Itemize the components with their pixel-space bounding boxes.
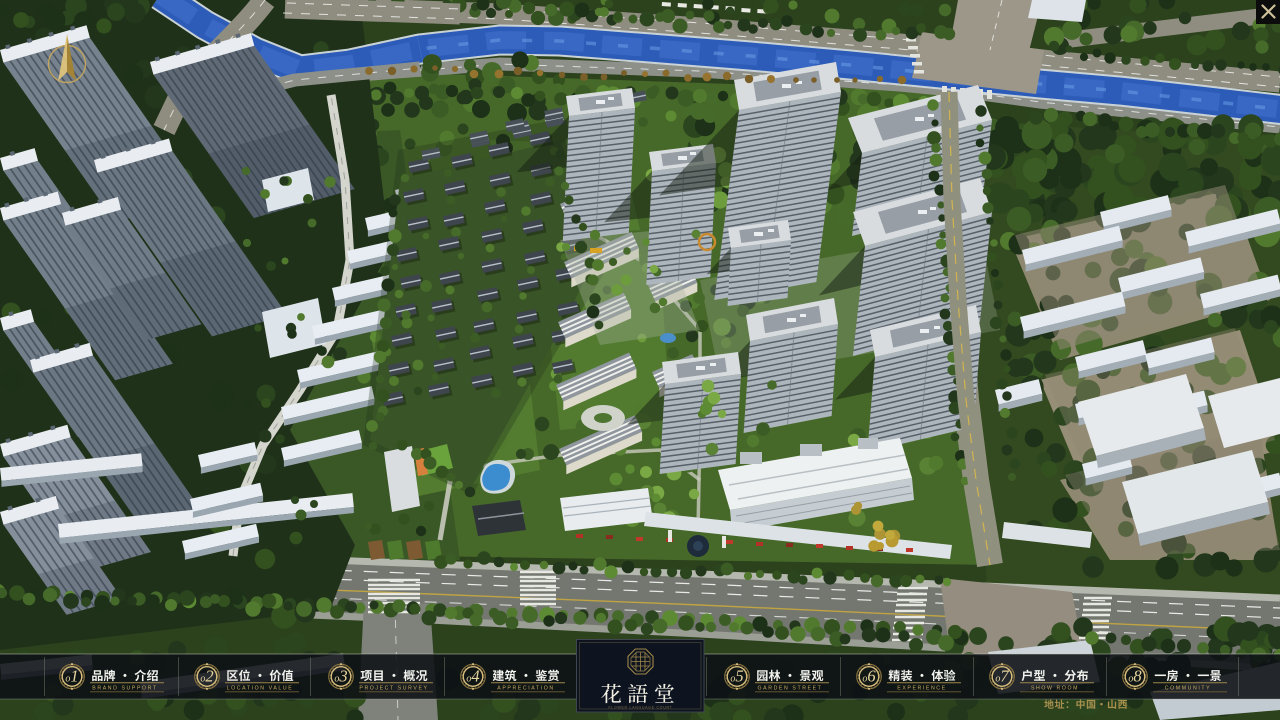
svg-text:PROJECT SURVEY: PROJECT SURVEY <box>359 686 428 692</box>
svg-text:BRAND SUPPORT: BRAND SUPPORT <box>92 686 157 692</box>
svg-text:SHOW ROOM: SHOW ROOM <box>1031 686 1079 692</box>
svg-text:APPRECIATION: APPRECIATION <box>497 686 554 692</box>
svg-text:EXPERIENCE: EXPERIENCE <box>897 686 946 692</box>
svg-text:FLOWER LANGUAGE COURT: FLOWER LANGUAGE COURT <box>608 706 672 710</box>
svg-text:COMMUNITY: COMMUNITY <box>1165 686 1211 692</box>
svg-text:LOCATION VALUE: LOCATION VALUE <box>227 686 294 692</box>
svg-text:GARDEN STREET: GARDEN STREET <box>758 686 823 692</box>
